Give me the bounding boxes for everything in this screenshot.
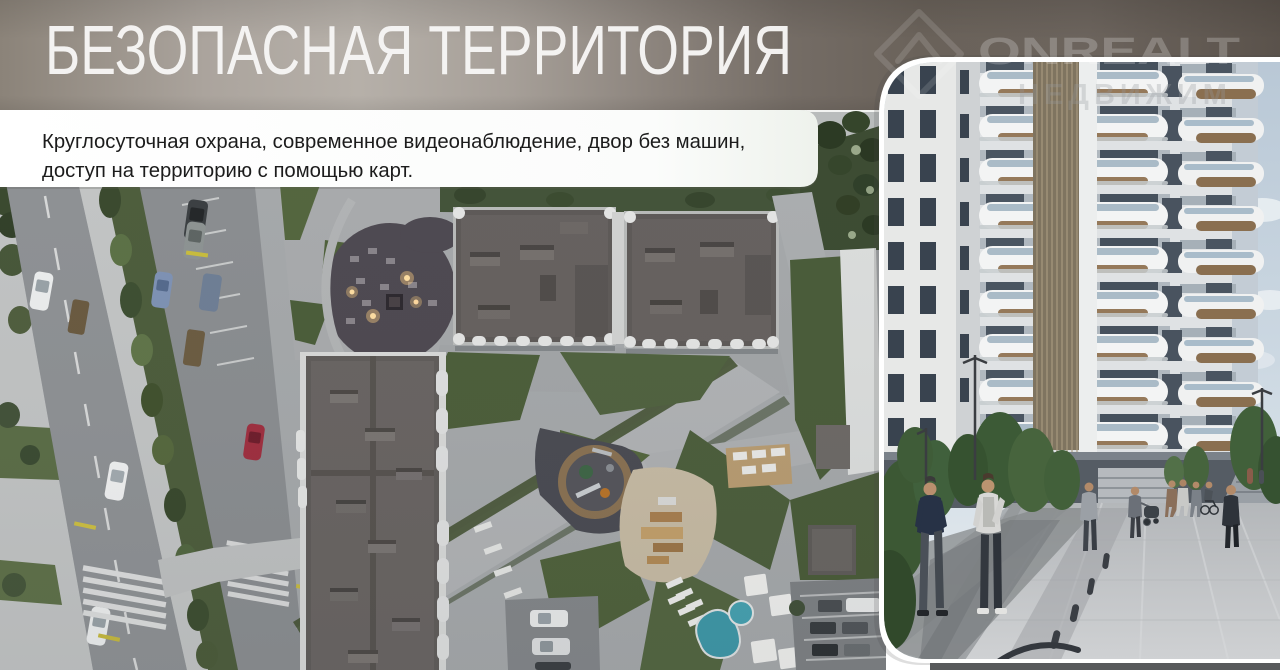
svg-text:ONREALT: ONREALT — [978, 31, 1240, 73]
svg-text:доступ на территорию с помощью: доступ на территорию с помощью карт. — [42, 160, 413, 182]
svg-text:БЕЗОПАСНАЯ ТЕРРИТОРИЯ: БЕЗОПАСНАЯ ТЕРРИТОРИЯ — [45, 11, 792, 89]
svg-text:Круглосуточная охрана, совреме: Круглосуточная охрана, современное видео… — [42, 131, 745, 153]
svg-text:НЕДВИЖИМ: НЕДВИЖИМ — [1018, 79, 1232, 111]
